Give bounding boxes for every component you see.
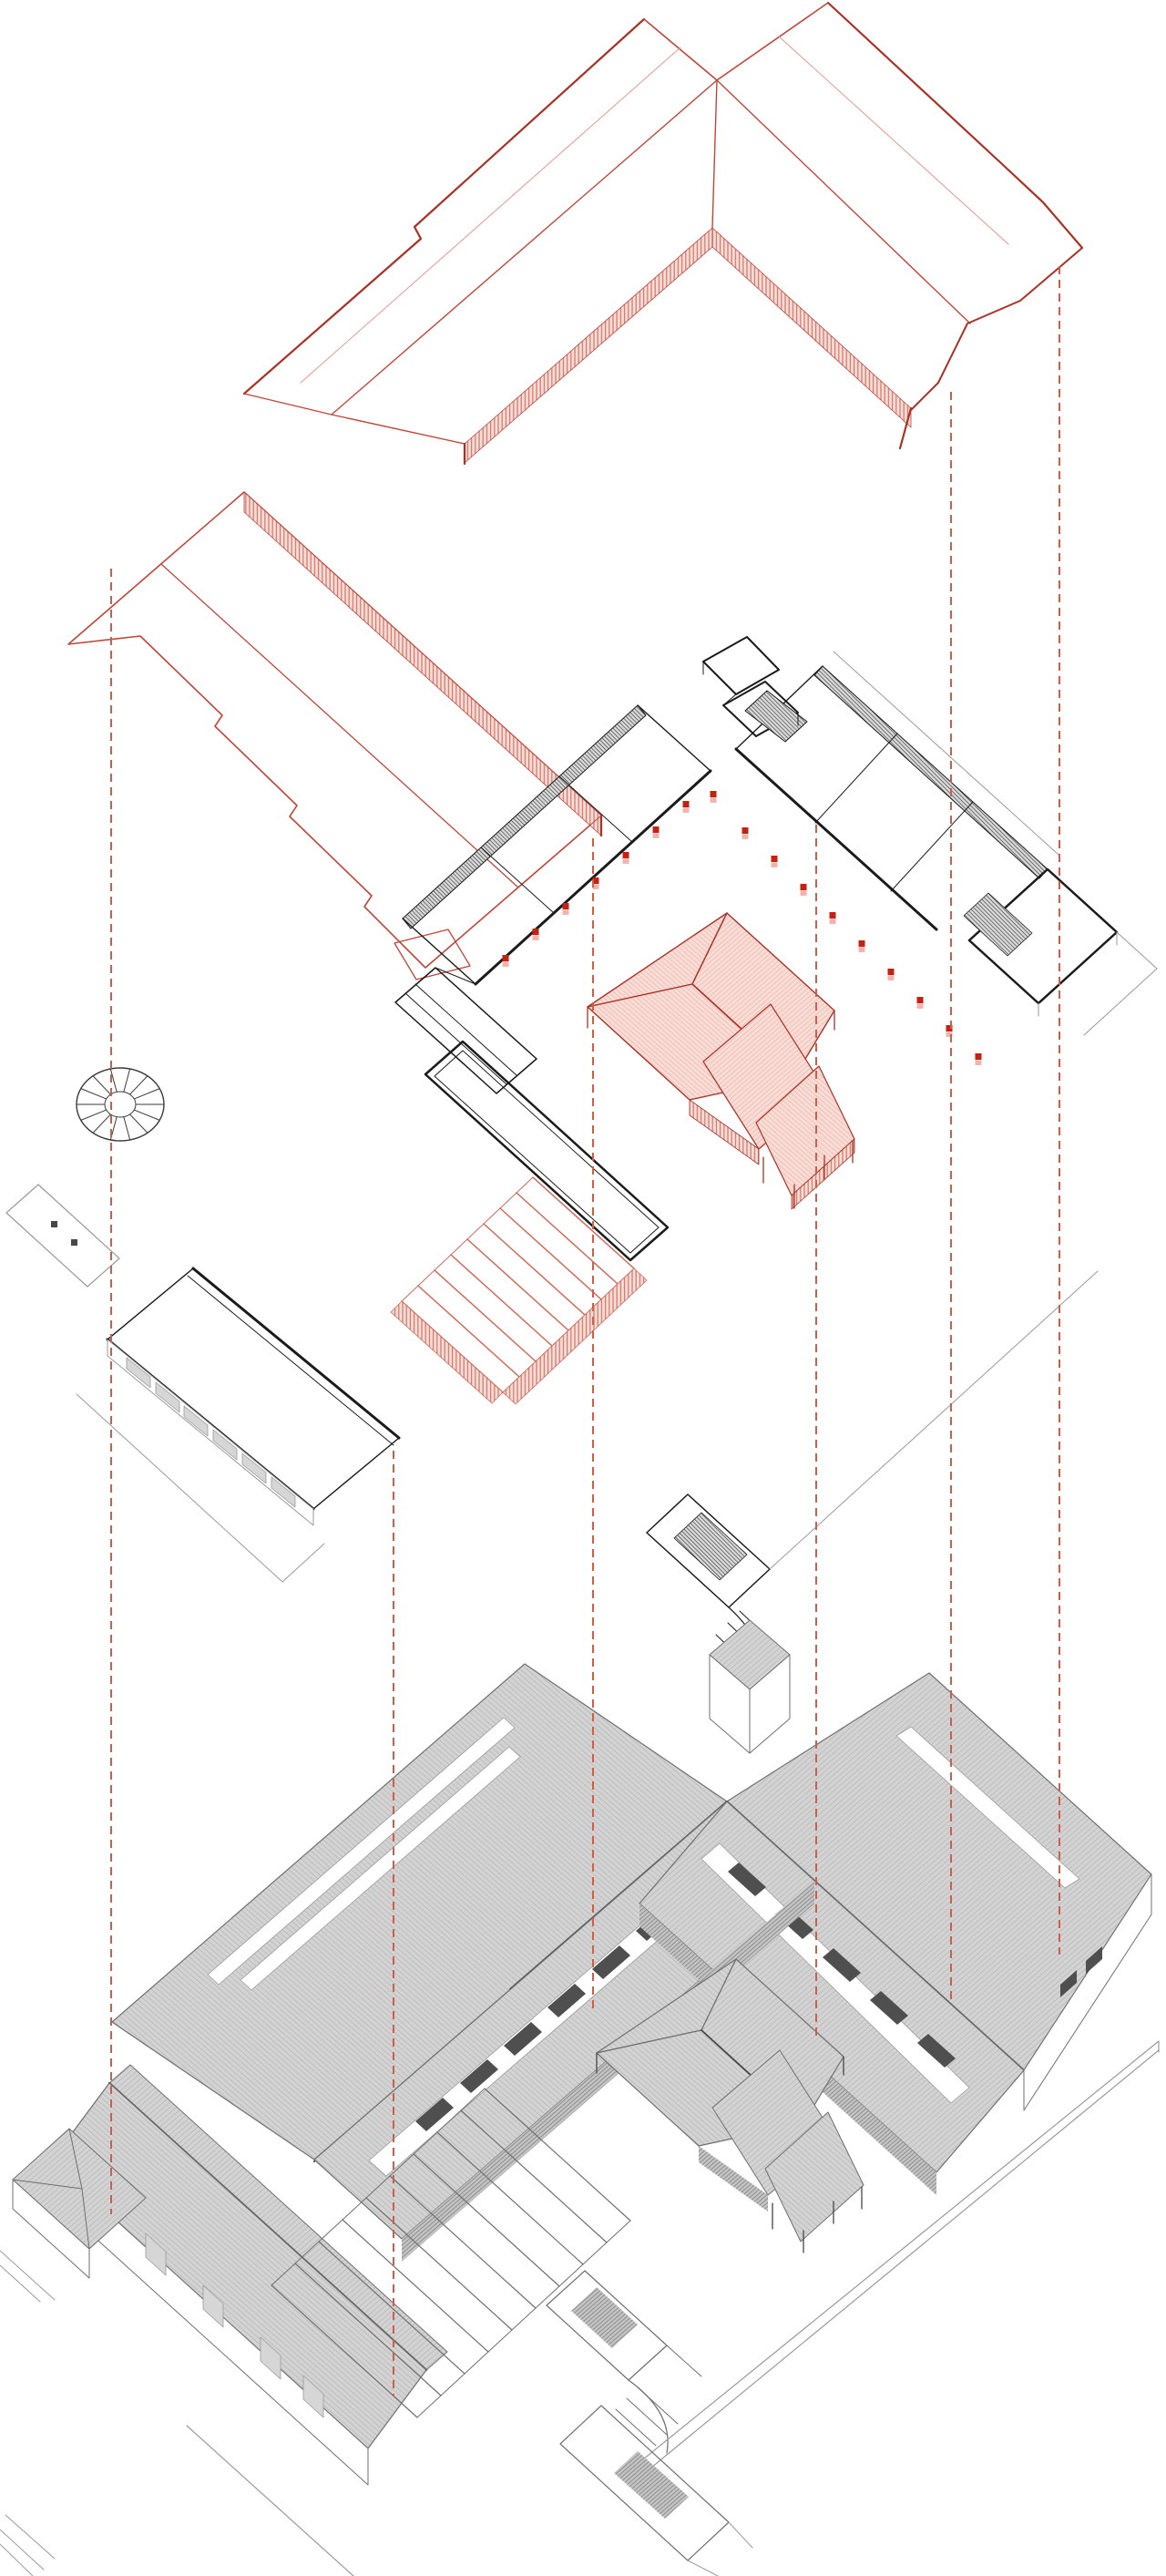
column-dot-base-14	[917, 1003, 924, 1009]
column-dot-base-9	[772, 862, 778, 867]
column-dot-6	[683, 801, 690, 807]
roof-plan-wireframe-layer	[68, 3, 1082, 980]
plan-wing2-outer-wall	[814, 666, 1048, 878]
spiral-stair-inner	[105, 1092, 136, 1117]
plan-ramp-treads-2	[500, 1208, 601, 1299]
spiral-stair-tread-13	[134, 1089, 159, 1099]
diagram-canvas	[0, 0, 1166, 2576]
spiral-stair-tread-12	[130, 1076, 148, 1094]
plan-entrance-block-upper	[703, 637, 779, 694]
column-dot-1	[533, 929, 539, 935]
column-dot-2	[563, 903, 569, 909]
column-dot-base-1	[533, 935, 539, 940]
annex-dot-2	[71, 1239, 77, 1246]
column-dot-base-8	[742, 834, 749, 839]
roof-eave-band-right	[712, 228, 911, 427]
plan-end-room-slab-0	[1117, 932, 1157, 969]
mass-west-annex-lines-1	[0, 2265, 40, 2302]
plan-wing1-outer-wall	[403, 705, 646, 929]
mass-misc-edge-lines-1	[688, 2561, 718, 2576]
plan-west-platform-steps-1	[405, 993, 506, 1084]
plan-wing2-courtyard-wall-0	[736, 749, 936, 929]
small-roof-outline	[68, 492, 601, 968]
plan-end-room-slab-1	[1084, 969, 1157, 1035]
mass-misc-edge-lines-0	[729, 2522, 752, 2548]
plan-ground-slab-lines-2	[282, 1544, 324, 1582]
plan-front-building-inner-line-0	[188, 1276, 394, 1445]
plan-front-building-caps-1	[313, 1438, 399, 1509]
spiral-stair-tread-8	[81, 1089, 107, 1099]
mass-small-stair-hatch	[571, 2287, 638, 2348]
exploded-axonometric-diagram	[0, 0, 1166, 2576]
building-massing-layer	[0, 1620, 1159, 2576]
plan-ramp-treads-3	[484, 1224, 585, 1315]
plan-wing2-partitions-1	[891, 802, 973, 891]
roof-wing1-outer-eave	[244, 19, 644, 394]
spiral-stair-tread-5	[93, 1114, 110, 1133]
roof-valley-line-0	[712, 80, 717, 228]
column-dot-4	[623, 852, 629, 858]
mass-south-platform-hatch	[614, 2451, 689, 2519]
plan-west-platform-steps-0	[415, 984, 517, 1075]
plan-wing2-slab-line-0	[834, 652, 1059, 855]
plan-gallery-outline	[425, 1042, 668, 1260]
roof-eave-band-left	[465, 228, 712, 463]
plan-front-building-ne-wall-0	[193, 1268, 399, 1438]
spiral-stair-tread-3	[124, 1117, 130, 1140]
mass-misc-edge-lines-4	[0, 2544, 33, 2576]
plan-south-stair-hatch	[674, 1513, 747, 1580]
mass-west-annex-lines-0	[0, 2251, 55, 2300]
roof-wing2-ridge-0	[717, 80, 970, 323]
roof-wing2-gable-end	[911, 248, 1082, 410]
column-dot-base-11	[830, 919, 836, 924]
annex-dot-1	[51, 1221, 57, 1227]
column-dot-base-12	[859, 947, 865, 952]
column-dot-8	[742, 827, 749, 834]
column-dot-base-10	[801, 890, 807, 896]
column-dot-9	[772, 856, 778, 862]
plan-wing2-partitions-0	[815, 734, 897, 823]
roof-wing2-outer-eave	[828, 3, 1082, 248]
column-dot-base-13	[888, 975, 895, 980]
roof-wing1-ridge-0	[332, 80, 717, 415]
mass-small-stair-steps-0	[638, 2387, 678, 2424]
column-dot-base-5	[653, 833, 660, 838]
annex-west-room	[6, 1185, 119, 1287]
mass-small-stair-steps-1	[627, 2398, 667, 2435]
roof-wing2-slope-line-0	[779, 36, 1008, 244]
column-dot-base-0	[503, 961, 509, 967]
plan-ramp-fascia	[503, 1268, 647, 1404]
column-dot-5	[653, 826, 660, 833]
column-dot-11	[830, 912, 836, 919]
small-roof-tail	[394, 929, 470, 980]
spiral-stair-tread-11	[124, 1069, 130, 1092]
plan-wing1-partitions-0	[559, 776, 632, 842]
roof-wing1-slope-line-0	[301, 47, 680, 383]
column-dot-14	[917, 997, 924, 1003]
small-roof-eave-band	[244, 492, 601, 836]
small-roof-end-edges-1	[518, 816, 601, 888]
mass-misc-edge-lines-2	[5, 2515, 55, 2559]
column-dot-base-4	[623, 858, 629, 864]
spiral-stair-tread-1	[134, 1110, 159, 1120]
plan-ramp-edges-0	[402, 1177, 533, 1301]
mass-small-stair-flank	[629, 2380, 668, 2453]
plan-wing1-partitions-1	[481, 847, 554, 913]
column-dot-7	[711, 791, 717, 797]
mass-small-stair-steps-2	[616, 2409, 656, 2446]
floor-plan-layer	[6, 637, 1157, 1688]
spiral-stair-tread-9	[93, 1076, 110, 1094]
column-dot-16	[976, 1053, 982, 1060]
column-dot-base-7	[711, 797, 717, 803]
plan-wing1-end-caps-0	[638, 705, 711, 771]
mass-misc-edge-lines-3	[0, 2530, 44, 2570]
small-roof-end-edges-0	[68, 564, 161, 644]
spiral-stair-tread-2	[130, 1114, 148, 1133]
column-dot-base-16	[976, 1060, 982, 1065]
plan-end-room-stair	[964, 893, 1032, 956]
column-dot-12	[859, 940, 865, 947]
column-dot-base-6	[683, 807, 690, 813]
plan-front-building-caps-0	[107, 1268, 193, 1339]
roof-corner-hips	[644, 3, 828, 80]
column-dot-13	[888, 969, 895, 975]
plan-ramp-treads-4	[467, 1239, 568, 1330]
plan-ground-slab-lines-1	[77, 1394, 282, 1582]
mass-small-stair-steps-3	[667, 2345, 701, 2376]
plan-ramp-treads-1	[517, 1193, 618, 1284]
column-dot-0	[503, 955, 509, 961]
plan-gallery-inner	[435, 1051, 659, 1253]
column-dot-10	[801, 884, 807, 890]
roof-wing1-gable-end	[244, 394, 465, 444]
spiral-stair-tread-6	[81, 1110, 107, 1120]
plan-ramp-treads-5	[451, 1255, 552, 1346]
plan-ground-slab-lines-0	[770, 1271, 1098, 1569]
column-dot-base-2	[563, 909, 569, 915]
